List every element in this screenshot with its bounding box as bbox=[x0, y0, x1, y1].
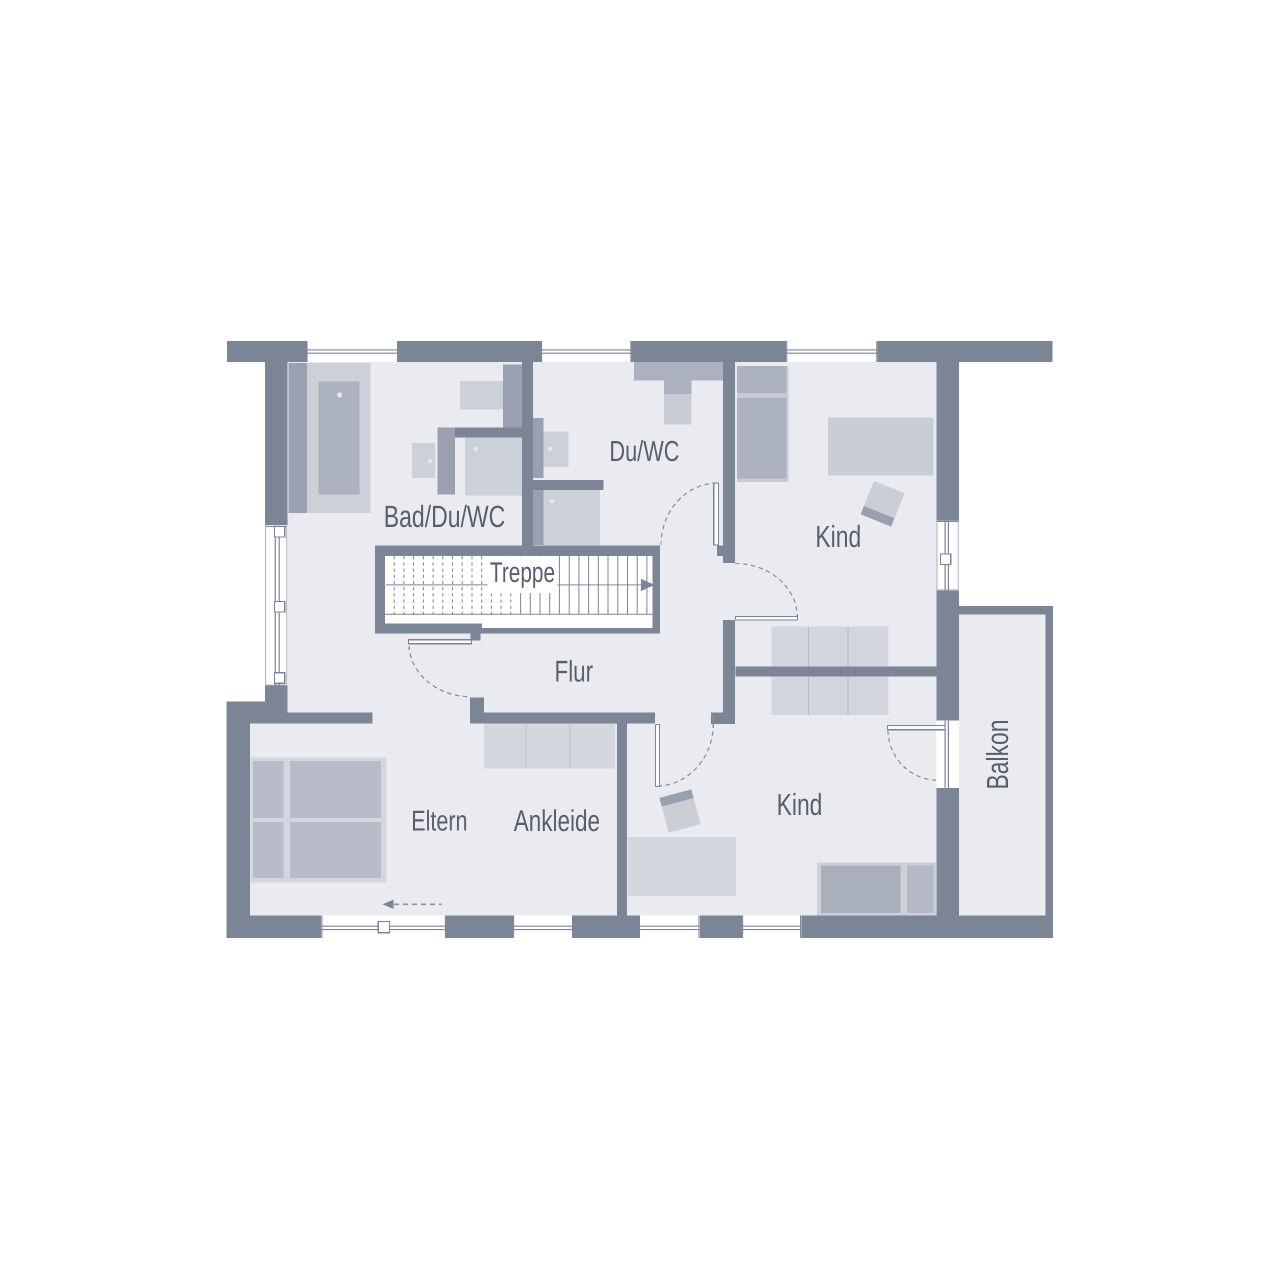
svg-text:Flur: Flur bbox=[554, 655, 593, 688]
svg-text:Eltern: Eltern bbox=[411, 806, 467, 838]
svg-text:Balkon: Balkon bbox=[981, 720, 1015, 790]
svg-text:Kind: Kind bbox=[815, 520, 861, 554]
svg-text:Du/WC: Du/WC bbox=[609, 436, 679, 468]
svg-text:Ankleide: Ankleide bbox=[514, 805, 600, 838]
svg-text:Treppe: Treppe bbox=[490, 557, 555, 589]
svg-text:Bad/Du/WC: Bad/Du/WC bbox=[384, 499, 506, 534]
svg-text:Kind: Kind bbox=[777, 788, 823, 822]
